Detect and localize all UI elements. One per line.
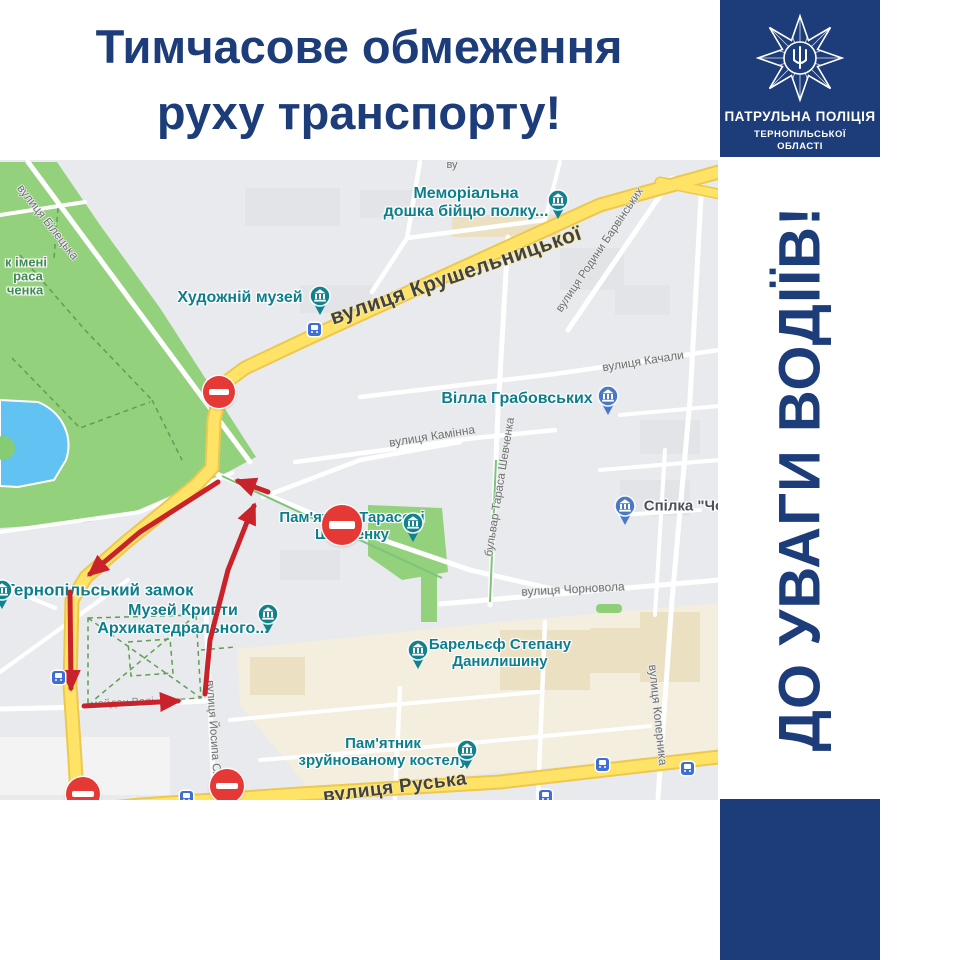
police-badge-block: ПАТРУЛЬНА ПОЛІЦІЯ ТЕРНОПІЛЬСЬКОЇ ОБЛАСТІ (720, 0, 880, 157)
traffic-restriction-poster: Тимчасове обмеження руху транспорту! (0, 0, 960, 960)
attention-banner: ДО УВАГИ ВОДІЇВ! (720, 157, 880, 799)
no-entry-bar (72, 791, 94, 797)
no-entry-bar (329, 521, 355, 528)
page-title: Тимчасове обмеження руху транспорту! (0, 14, 718, 146)
bottom-blue-block (720, 799, 880, 960)
police-org-name: ПАТРУЛЬНА ПОЛІЦІЯ (720, 109, 880, 124)
no-entry-sign-icon (66, 777, 100, 800)
police-region-line1: ТЕРНОПІЛЬСЬКОЇ (720, 129, 880, 140)
no-entry-sign-icon (210, 769, 244, 800)
no-entry-sign-icon (322, 505, 362, 545)
title-line-1: Тимчасове обмеження (0, 14, 718, 80)
no-entry-bar (209, 389, 229, 395)
no-entry-bar (216, 783, 238, 789)
map-sign-layer (0, 160, 718, 800)
no-entry-sign-icon (203, 376, 235, 408)
title-line-2: руху транспорту! (0, 80, 718, 146)
right-panel: ПАТРУЛЬНА ПОЛІЦІЯ ТЕРНОПІЛЬСЬКОЇ ОБЛАСТІ… (720, 0, 960, 960)
city-map: вувулиця Білецькавулиця Крушельницькоїву… (0, 160, 718, 800)
police-star-icon (720, 0, 880, 105)
attention-text: ДО УВАГИ ВОДІЇВ! (767, 205, 834, 751)
police-region-line2: ОБЛАСТІ (720, 141, 880, 152)
